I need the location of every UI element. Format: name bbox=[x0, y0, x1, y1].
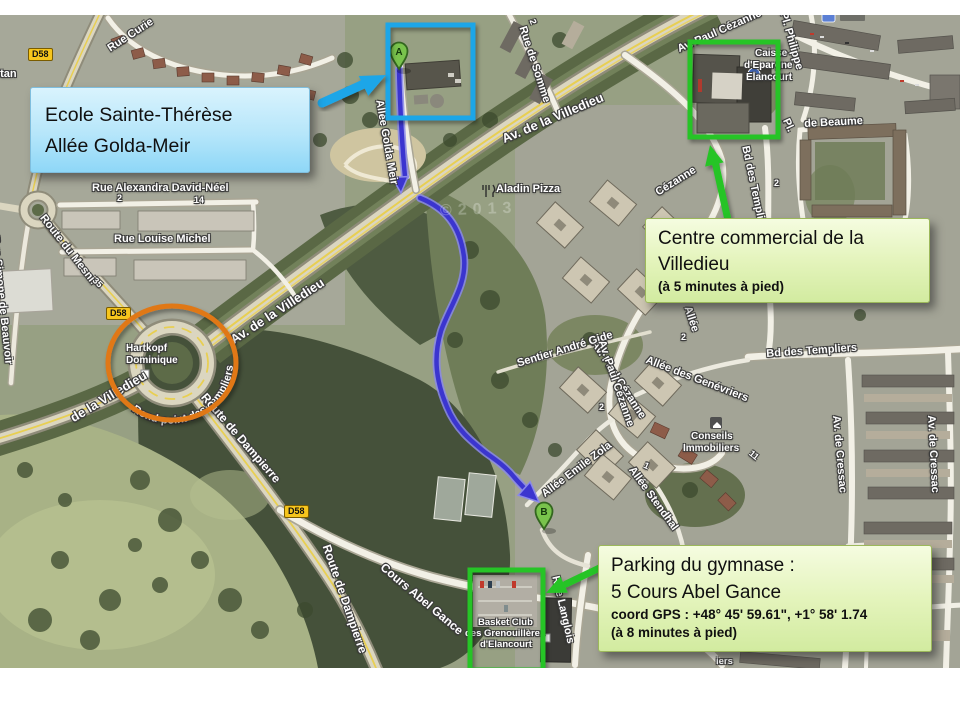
marker-b-letter: B bbox=[540, 507, 547, 518]
poi-label-smudge bbox=[840, 15, 865, 21]
poi-label-caisse-3: Elancourt bbox=[746, 73, 792, 83]
callout-parking-line1: Parking du gymnase : bbox=[611, 552, 919, 579]
callout-centre-note: (à 5 minutes à pied) bbox=[658, 278, 917, 296]
poi-label-hartkopf-1: Hartkopf bbox=[126, 344, 167, 354]
poi-label-basket-2: des Grenouillères bbox=[465, 629, 545, 639]
street-label-rue-alexandra: Rue Alexandra David-Néel bbox=[92, 183, 229, 194]
callout-parking-gps: coord GPS : +48° 45' 59.61", +1° 58' 1.7… bbox=[611, 606, 919, 624]
poi-label-caisse-1: Caisse bbox=[755, 49, 787, 59]
callout-ecole-line2: Allée Golda-Meir bbox=[45, 131, 295, 162]
real-estate-icon bbox=[710, 417, 722, 429]
street-label-stan: stan bbox=[0, 69, 17, 80]
poi-label-conseils-2: Immobiliers bbox=[683, 444, 739, 454]
imagery-watermark: ©2013 bbox=[440, 200, 518, 221]
road-badge-d58-3: D58 bbox=[284, 505, 309, 518]
street-label-rue-louise: Rue Louise Michel bbox=[114, 234, 211, 245]
callout-centre-line1: Centre commercial de la bbox=[658, 226, 917, 252]
callout-parking: Parking du gymnase : 5 Cours Abel Gance … bbox=[598, 545, 932, 652]
poi-label-basket-3: d'Elancourt bbox=[480, 640, 532, 650]
poi-label-caisse-2: d'Epargne bbox=[744, 61, 793, 71]
road-badge-d58-1: D58 bbox=[28, 48, 53, 61]
map-area: € Rond-point des Templiers A bbox=[0, 15, 960, 668]
house-number: 2 bbox=[681, 333, 686, 342]
road-badge-d58-2: D58 bbox=[106, 307, 131, 320]
callout-centre-line2: Villedieu bbox=[658, 252, 917, 278]
callout-parking-note: (à 8 minutes à pied) bbox=[611, 624, 919, 642]
house-number: 2 bbox=[599, 403, 604, 412]
callout-ecole: Ecole Sainte-Thérèse Allée Golda-Meir bbox=[30, 87, 310, 173]
poi-label-aladin: Aladin Pizza bbox=[496, 184, 560, 195]
callout-parking-line2: 5 Cours Abel Gance bbox=[611, 579, 919, 606]
poi-label-hartkopf-2: Dominique bbox=[126, 356, 178, 366]
callout-centre-commercial: Centre commercial de la Villedieu (à 5 m… bbox=[645, 218, 930, 303]
house-number: 2 bbox=[117, 194, 122, 203]
transit-poi-icon bbox=[822, 15, 865, 22]
street-label-iers: iers bbox=[716, 657, 733, 667]
slide: € Rond-point des Templiers A bbox=[0, 0, 960, 720]
poi-label-conseils-1: Conseils bbox=[691, 432, 733, 442]
callout-ecole-line1: Ecole Sainte-Thérèse bbox=[45, 100, 295, 131]
poi-label-basket-1: Basket Club bbox=[478, 618, 533, 628]
house-number: 14 bbox=[194, 196, 204, 205]
house-number: 2 bbox=[774, 179, 779, 188]
marker-a-letter: A bbox=[395, 47, 402, 58]
